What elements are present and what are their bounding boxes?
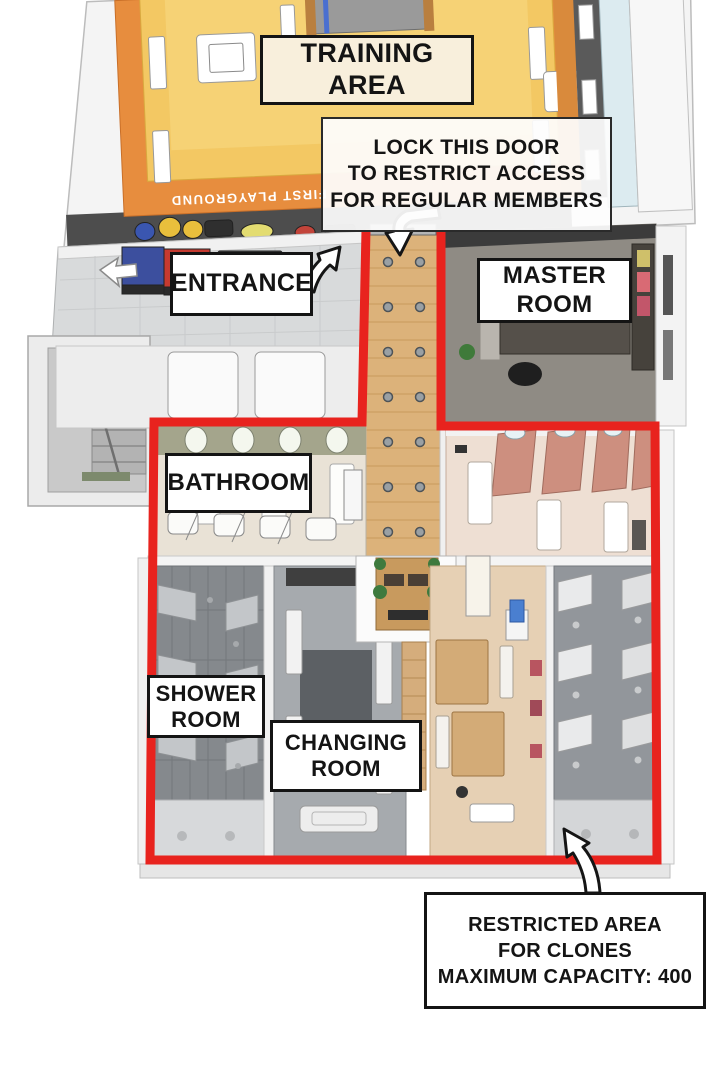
lounge-room-zone <box>430 556 546 862</box>
lock-door-note-label: LOCK THIS DOOR TO RESTRICT ACCESS FOR RE… <box>321 117 612 232</box>
bathroom-door <box>344 470 362 520</box>
stall-doors-left <box>558 574 592 752</box>
changing-room-label: CHANGING ROOM <box>270 720 422 792</box>
bathroom-label: BATHROOM <box>165 453 312 513</box>
stall-doors-right <box>622 572 654 750</box>
toilet-stall-room-zone <box>554 566 658 862</box>
floorplan-scene: FIRST PLAYGROUND <box>0 0 720 1080</box>
mid-wall-band <box>56 346 366 428</box>
entrance-label: ENTRANCE <box>170 252 313 316</box>
stair-mat <box>82 472 130 481</box>
master-room-zone <box>441 224 686 426</box>
stall-room-zone <box>446 424 656 558</box>
restricted-area-label: RESTRICTED AREA FOR CLONES MAXIMUM CAPAC… <box>424 892 706 1009</box>
shower-room-label: SHOWER ROOM <box>147 675 265 738</box>
wall <box>546 566 554 862</box>
corridor-zone <box>358 224 448 560</box>
training-area-label: TRAINING AREA <box>260 35 474 105</box>
wall <box>264 566 274 862</box>
master-room-label: MASTER ROOM <box>477 258 632 323</box>
